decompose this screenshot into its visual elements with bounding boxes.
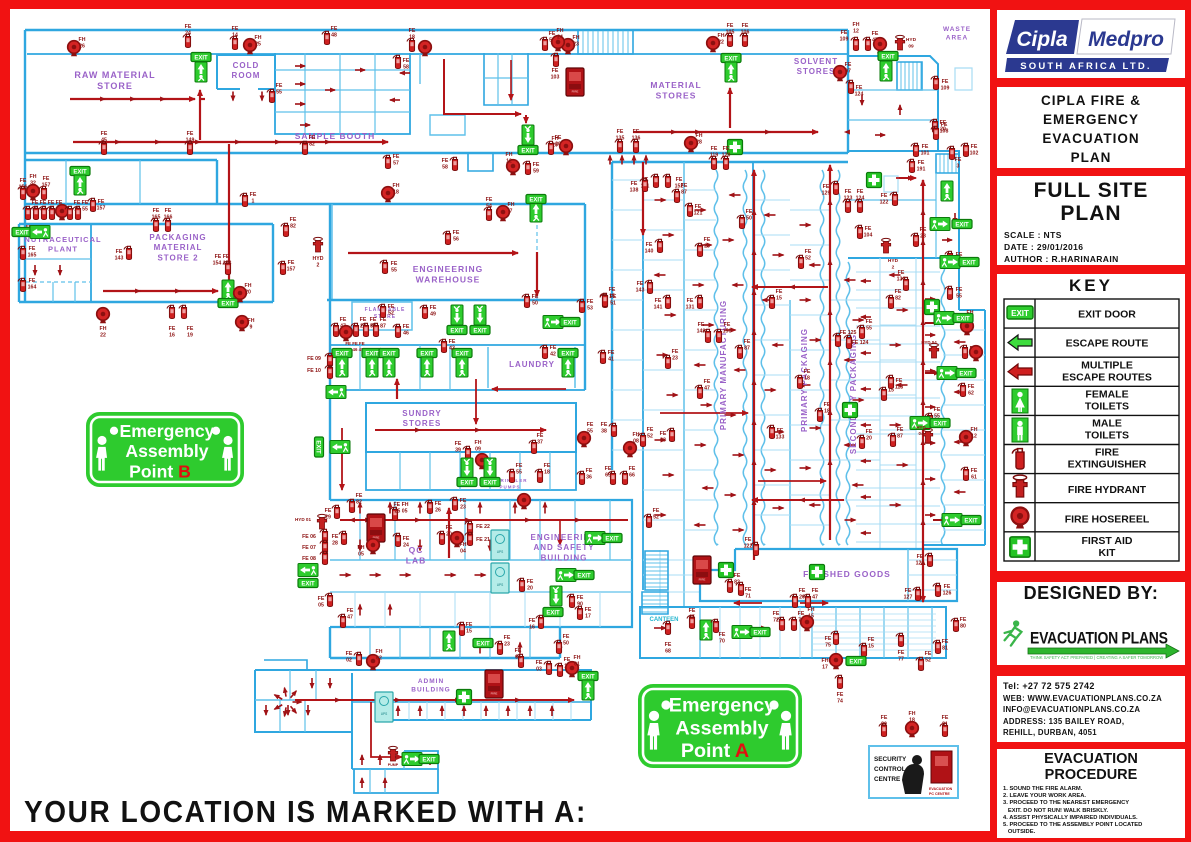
svg-text:FE: FE: [403, 58, 410, 64]
svg-text:26: 26: [435, 508, 441, 514]
svg-text:FE FE: FE FE: [215, 254, 230, 260]
svg-text:82: 82: [356, 500, 362, 506]
svg-text:RAW MATERIAL: RAW MATERIAL: [74, 70, 155, 80]
svg-text:7: 7: [510, 209, 513, 215]
svg-text:FE: FE: [922, 144, 929, 150]
svg-text:FE: FE: [325, 508, 332, 514]
svg-text:FE: FE: [631, 181, 638, 187]
svg-text:15: 15: [466, 629, 472, 635]
svg-text:FE: FE: [898, 270, 905, 276]
svg-text:FH: FH: [557, 28, 564, 34]
svg-text:16: 16: [169, 333, 175, 339]
svg-text:HYD: HYD: [906, 37, 917, 43]
svg-text:FE: FE: [608, 350, 615, 356]
svg-text:32: 32: [30, 181, 36, 187]
svg-text:STORES: STORES: [656, 91, 697, 101]
svg-text:FE: FE: [388, 304, 395, 310]
svg-text:120: 120: [722, 153, 731, 159]
svg-text:FE: FE: [823, 184, 830, 190]
svg-text:FH: FH: [853, 22, 860, 28]
svg-text:FE: FE: [309, 135, 316, 141]
svg-text:MALE: MALE: [1092, 418, 1122, 430]
svg-text:52: 52: [653, 515, 659, 521]
svg-text:20: 20: [245, 290, 251, 296]
svg-text:SOUTH AFRICA LTD.: SOUTH AFRICA LTD.: [1020, 61, 1152, 72]
svg-text:FH: FH: [574, 655, 581, 661]
svg-text:75: 75: [825, 643, 831, 649]
svg-text:FH: FH: [100, 326, 107, 332]
svg-text:HYD: HYD: [888, 258, 899, 264]
svg-text:EXIT: EXIT: [1011, 309, 1029, 318]
svg-text:23: 23: [704, 244, 710, 250]
svg-text:23: 23: [504, 642, 510, 648]
svg-text:9: 9: [250, 325, 253, 331]
svg-text:FE: FE: [925, 651, 932, 657]
svg-text:QC: QC: [409, 545, 424, 555]
svg-text:FE 10: FE 10: [307, 368, 321, 374]
svg-text:FE: FE: [646, 242, 653, 248]
svg-text:FE: FE: [409, 28, 416, 34]
svg-text:FH: FH: [376, 649, 383, 655]
svg-text:FE: FE: [74, 200, 81, 206]
svg-text:FE: FE: [165, 208, 172, 214]
svg-text:87: 87: [897, 434, 903, 440]
svg-text:191: 191: [917, 167, 926, 173]
svg-text:Emergency: Emergency: [120, 421, 215, 441]
svg-text:CONTROL: CONTROL: [874, 766, 906, 773]
svg-text:42: 42: [550, 352, 556, 358]
svg-text:FE: FE: [898, 650, 905, 656]
svg-text:04: 04: [515, 655, 521, 661]
svg-text:FE: FE: [653, 508, 660, 514]
svg-text:58: 58: [442, 165, 448, 171]
svg-text:FE: FE: [435, 501, 442, 507]
svg-text:15: 15: [776, 296, 782, 302]
svg-text:FE: FE: [812, 588, 819, 594]
svg-text:2: 2: [317, 263, 320, 269]
svg-text:FE: FE: [920, 227, 927, 233]
svg-text:48: 48: [331, 33, 337, 39]
svg-text:46: 46: [403, 331, 409, 337]
svg-text:FE: FE: [442, 158, 449, 164]
svg-text:24: 24: [403, 543, 409, 549]
svg-text:FE FE FE: FE FE FE: [345, 341, 364, 346]
svg-text:65: 65: [605, 473, 611, 479]
svg-text:149: 149: [697, 329, 706, 335]
svg-text:PC CENTRE: PC CENTRE: [929, 792, 950, 796]
svg-text:FE: FE: [536, 660, 543, 666]
svg-text:FE: FE: [617, 129, 624, 135]
svg-text:FH: FH: [822, 658, 829, 664]
svg-text:20: 20: [555, 142, 561, 148]
svg-text:03: 03: [536, 667, 542, 673]
svg-text:FE: FE: [98, 199, 105, 205]
svg-text:FE: FE: [745, 537, 752, 543]
svg-text:FE: FE: [897, 427, 904, 433]
svg-text:FE: FE: [586, 468, 593, 474]
svg-text:FE: FE: [537, 433, 544, 439]
svg-text:50: 50: [532, 301, 538, 307]
svg-text:FE: FE: [20, 178, 27, 184]
svg-text:FH: FH: [506, 152, 513, 158]
svg-text:FE: FE: [896, 378, 903, 384]
svg-text:15: 15: [868, 644, 874, 650]
svg-text:FE: FE: [529, 618, 536, 624]
svg-text:143: 143: [115, 256, 124, 262]
svg-text:38: 38: [601, 429, 607, 435]
svg-text:FE: FE: [430, 305, 437, 311]
svg-text:FE: FE: [881, 193, 888, 199]
svg-text:12: 12: [971, 434, 977, 440]
svg-text:141: 141: [654, 305, 663, 311]
svg-text:FH: FH: [909, 711, 916, 717]
svg-text:109: 109: [840, 37, 849, 43]
svg-text:136: 136: [632, 136, 641, 142]
svg-text:3: 3: [957, 164, 960, 170]
svg-text:53: 53: [587, 306, 593, 312]
svg-text:PRIMARY MANUFACTURING: PRIMARY MANUFACTURING: [719, 300, 728, 430]
svg-text:EXTINGUISHER: EXTINGUISHER: [1068, 459, 1147, 471]
svg-text:STORE: STORE: [97, 81, 133, 91]
svg-text:FE: FE: [40, 200, 47, 206]
svg-text:FE: FE: [555, 135, 562, 141]
svg-text:ENGINEERING: ENGINEERING: [413, 264, 484, 274]
svg-text:FE: FE: [331, 26, 338, 32]
svg-text:59: 59: [533, 169, 539, 175]
svg-text:FE: FE: [856, 85, 863, 91]
svg-text:Emergency: Emergency: [669, 695, 775, 717]
svg-text:20: 20: [866, 436, 872, 442]
svg-text:FE: FE: [637, 281, 644, 287]
svg-text:FE: FE: [776, 289, 783, 295]
svg-text:55: 55: [276, 90, 282, 96]
svg-text:2: 2: [892, 264, 895, 270]
svg-text:FE: FE: [455, 441, 462, 447]
svg-text:119: 119: [710, 153, 718, 159]
svg-text:FE: FE: [845, 62, 852, 68]
svg-text:FE: FE: [101, 131, 108, 137]
svg-text:EVACUATION: EVACUATION: [929, 787, 953, 791]
svg-text:FE: FE: [955, 157, 962, 163]
svg-text:HYD 04: HYD 04: [921, 340, 937, 345]
svg-text:19: 19: [187, 333, 193, 339]
svg-text:FE: FE: [552, 68, 559, 74]
svg-text:124: 124: [856, 196, 865, 202]
svg-text:154 153: 154 153: [213, 261, 232, 267]
svg-text:43: 43: [449, 346, 455, 352]
svg-text:FE: FE: [403, 536, 410, 542]
svg-text:FE: FE: [956, 287, 963, 293]
svg-text:130: 130: [897, 277, 906, 283]
svg-text:Assembly: Assembly: [125, 441, 208, 461]
svg-text:FE: FE: [587, 422, 594, 428]
svg-text:FE: FE: [356, 493, 363, 499]
svg-text:TOILETS: TOILETS: [1085, 430, 1129, 442]
svg-text:FE: FE: [605, 466, 612, 472]
svg-text:23: 23: [672, 356, 678, 362]
svg-text:FE 06: FE 06: [302, 534, 316, 540]
svg-text:50: 50: [746, 216, 752, 222]
svg-text:HYD 01: HYD 01: [295, 517, 312, 522]
svg-text:FE: FE: [805, 249, 812, 255]
svg-text:FE: FE: [734, 573, 741, 579]
svg-text:FE: FE: [940, 120, 947, 126]
svg-text:82: 82: [309, 142, 315, 148]
svg-text:02: 02: [346, 658, 352, 664]
svg-text:18: 18: [804, 376, 810, 382]
svg-text:STORES: STORES: [797, 67, 836, 76]
svg-text:05: 05: [318, 603, 324, 609]
svg-text:LAB: LAB: [406, 556, 426, 566]
svg-text:FE: FE: [185, 24, 192, 30]
svg-text:FE: FE: [746, 209, 753, 215]
svg-text:22: 22: [718, 40, 724, 46]
svg-text:STORE 2: STORE 2: [157, 253, 198, 262]
svg-text:24: 24: [185, 31, 191, 37]
svg-text:FH: FH: [255, 35, 262, 41]
svg-text:FE: FE: [944, 584, 951, 590]
svg-text:FIRE HOSEREEL: FIRE HOSEREEL: [1065, 513, 1150, 525]
svg-text:FH: FH: [508, 202, 515, 208]
svg-text:FH: FH: [358, 545, 365, 551]
svg-text:FE: FE: [563, 634, 570, 640]
svg-text:22: 22: [100, 333, 106, 339]
svg-text:101: 101: [921, 151, 930, 157]
svg-text:Point B: Point B: [129, 461, 191, 481]
svg-text:FE: FE: [724, 322, 731, 328]
svg-text:164: 164: [28, 285, 37, 291]
svg-text:131: 131: [686, 305, 695, 311]
svg-text:FE: FE: [533, 162, 540, 168]
svg-text:FE: FE: [918, 160, 925, 166]
svg-text:FE: FE: [917, 554, 924, 560]
svg-text:25 05: 25 05: [395, 509, 408, 515]
svg-text:FE: FE: [905, 588, 912, 594]
svg-text:126: 126: [943, 591, 952, 597]
svg-text:36: 36: [586, 475, 592, 481]
svg-text:FE: FE: [723, 146, 730, 152]
svg-text:FH: FH: [718, 33, 725, 39]
svg-text:23: 23: [573, 42, 579, 48]
svg-text:102: 102: [970, 151, 979, 157]
svg-text:01: 01: [574, 662, 580, 668]
svg-text:1: 1: [252, 199, 255, 205]
svg-text:121: 121: [694, 211, 703, 217]
svg-text:17: 17: [585, 614, 591, 620]
svg-text:28: 28: [696, 140, 702, 146]
svg-text:FE 08: FE 08: [302, 556, 316, 562]
svg-text:FE: FE: [288, 260, 295, 266]
svg-text:FE: FE: [704, 379, 711, 385]
svg-text:165: 165: [152, 215, 161, 221]
svg-text:FE: FE: [845, 189, 852, 195]
svg-text:49: 49: [430, 312, 436, 318]
svg-text:138: 138: [630, 188, 639, 194]
svg-text:37: 37: [537, 440, 543, 446]
svg-text:FE: FE: [116, 249, 123, 255]
svg-text:127: 127: [904, 595, 913, 601]
svg-text:FH: FH: [573, 35, 580, 41]
svg-text:FE: FE: [665, 642, 672, 648]
svg-text:28: 28: [332, 541, 338, 547]
svg-text:FE: FE: [837, 692, 844, 698]
svg-text:16: 16: [529, 625, 535, 631]
svg-text:55: 55: [866, 326, 872, 332]
svg-text:FE: FE: [393, 154, 400, 160]
svg-text:25: 25: [255, 42, 261, 48]
svg-text:FE: FE: [587, 299, 594, 305]
svg-text:52: 52: [925, 658, 931, 664]
svg-text:61: 61: [971, 475, 977, 481]
svg-text:Medpro: Medpro: [1088, 28, 1164, 51]
svg-text:FE: FE: [633, 129, 640, 135]
svg-text:FE: FE: [360, 317, 367, 323]
svg-text:118: 118: [895, 385, 903, 391]
svg-text:55: 55: [587, 429, 593, 435]
svg-text:FE: FE: [232, 26, 239, 32]
svg-text:52: 52: [647, 434, 653, 440]
svg-text:FE: FE: [672, 349, 679, 355]
svg-text:WAREHOUSE: WAREHOUSE: [416, 275, 481, 285]
svg-text:FE: FE: [370, 317, 377, 323]
svg-text:FE: FE: [187, 326, 194, 332]
svg-text:SOLVENT: SOLVENT: [794, 57, 838, 66]
svg-text:FH: FH: [248, 318, 255, 324]
svg-text:41: 41: [608, 357, 614, 363]
svg-text:04: 04: [460, 549, 466, 555]
svg-text:FE: FE: [866, 319, 873, 325]
svg-text:FE: FE: [695, 204, 702, 210]
svg-text:143: 143: [636, 288, 645, 294]
svg-text:65: 65: [689, 615, 695, 621]
svg-text:EXIT DOOR: EXIT DOOR: [1078, 309, 1136, 321]
svg-text:81: 81: [942, 646, 948, 652]
svg-text:FE FH: FE FH: [394, 502, 409, 508]
svg-text:FE: FE: [934, 407, 941, 413]
svg-text:47: 47: [812, 595, 818, 601]
svg-text:166: 166: [164, 215, 173, 221]
svg-text:55: 55: [516, 470, 522, 476]
svg-text:18: 18: [824, 409, 830, 415]
svg-text:FE: FE: [698, 322, 705, 328]
svg-text:FE: FE: [942, 79, 949, 85]
svg-text:62: 62: [968, 391, 974, 397]
svg-text:47: 47: [704, 386, 710, 392]
svg-text:FE: FE: [960, 617, 967, 623]
svg-text:70: 70: [719, 639, 725, 645]
svg-text:FE: FE: [515, 648, 522, 654]
svg-text:FH: FH: [460, 542, 467, 548]
svg-text:80: 80: [881, 722, 887, 728]
svg-text:KIT: KIT: [1099, 547, 1117, 559]
svg-text:FE: FE: [773, 611, 780, 617]
svg-text:FE: FE: [629, 466, 636, 472]
svg-text:FE: FE: [745, 587, 752, 593]
svg-text:FE: FE: [824, 402, 831, 408]
svg-text:157: 157: [97, 206, 106, 212]
svg-text:57: 57: [393, 161, 399, 167]
svg-text:FE: FE: [655, 298, 662, 304]
svg-text:FE: FE: [346, 651, 353, 657]
svg-text:FE: FE: [169, 326, 176, 332]
svg-text:FE: FE: [744, 339, 751, 345]
svg-text:23: 23: [920, 234, 926, 240]
svg-text:FE: FE: [532, 294, 539, 300]
svg-text:157: 157: [42, 183, 51, 189]
svg-text:20: 20: [527, 586, 533, 592]
svg-text:68: 68: [665, 649, 671, 655]
svg-text:FH: FH: [245, 283, 252, 289]
svg-text:FH: FH: [79, 37, 86, 43]
svg-text:FE: FE: [942, 715, 949, 721]
svg-text:74: 74: [837, 699, 843, 705]
svg-text:FE: FE: [32, 200, 39, 206]
svg-text:FE: FE: [403, 324, 410, 330]
svg-text:FE: FE: [727, 23, 734, 29]
svg-text:105: 105: [726, 30, 735, 36]
svg-text:Assembly: Assembly: [675, 717, 768, 739]
svg-text:BUILDING: BUILDING: [411, 687, 450, 694]
svg-text:FE: FE: [391, 261, 398, 267]
svg-text:COLD: COLD: [233, 61, 260, 70]
svg-text:FH: FH: [393, 183, 400, 189]
svg-text:PACKAGING: PACKAGING: [149, 233, 206, 242]
svg-text:WASTE: WASTE: [943, 26, 971, 33]
svg-text:FE: FE: [486, 197, 493, 203]
svg-text:FE 124: FE 124: [852, 340, 869, 346]
svg-text:18: 18: [544, 470, 550, 476]
svg-text:FE: FE: [895, 289, 902, 295]
svg-text:FE: FE: [865, 226, 872, 232]
svg-text:PUMP: PUMP: [388, 763, 399, 767]
svg-text:FE: FE: [460, 498, 467, 504]
svg-text:FE: FE: [453, 230, 460, 236]
svg-text:FE: FE: [971, 144, 978, 150]
svg-text:87: 87: [380, 324, 386, 330]
svg-text:103: 103: [551, 75, 560, 81]
svg-text:FE: FE: [777, 428, 784, 434]
svg-text:FE: FE: [504, 635, 511, 641]
svg-text:LAUNDRY: LAUNDRY: [509, 360, 555, 369]
svg-text:135: 135: [616, 136, 625, 142]
svg-text:26: 26: [79, 44, 85, 50]
svg-text:FE: FE: [687, 298, 694, 304]
svg-text:87: 87: [744, 346, 750, 352]
svg-text:63: 63: [660, 438, 666, 444]
svg-text:82: 82: [895, 296, 901, 302]
svg-text:THINK SAFETY ACT PREPARED | CR: THINK SAFETY ACT PREPARED | CREATING A S…: [1030, 655, 1163, 660]
svg-text:FE: FE: [466, 622, 473, 628]
svg-text:FE: FE: [290, 217, 297, 223]
svg-text:FH: FH: [971, 427, 978, 433]
svg-text:02: 02: [376, 656, 382, 662]
svg-text:12: 12: [853, 29, 859, 35]
svg-text:FE: FE: [48, 200, 55, 206]
svg-text:15: 15: [808, 614, 814, 620]
svg-text:SUNDRY: SUNDRY: [402, 409, 441, 418]
svg-text:15: 15: [609, 294, 615, 300]
svg-text:FH: FH: [696, 133, 703, 139]
svg-text:MULTIPLE: MULTIPLE: [1081, 359, 1133, 371]
svg-text:TOILETS: TOILETS: [1085, 400, 1129, 412]
svg-text:104: 104: [864, 233, 873, 239]
svg-text:FE: FE: [449, 339, 456, 345]
svg-text:FE: FE: [601, 422, 608, 428]
svg-text:FE: FE: [968, 384, 975, 390]
svg-text:Cipla: Cipla: [1016, 28, 1068, 51]
svg-text:123: 123: [844, 196, 853, 202]
svg-text:FE: FE: [799, 588, 806, 594]
